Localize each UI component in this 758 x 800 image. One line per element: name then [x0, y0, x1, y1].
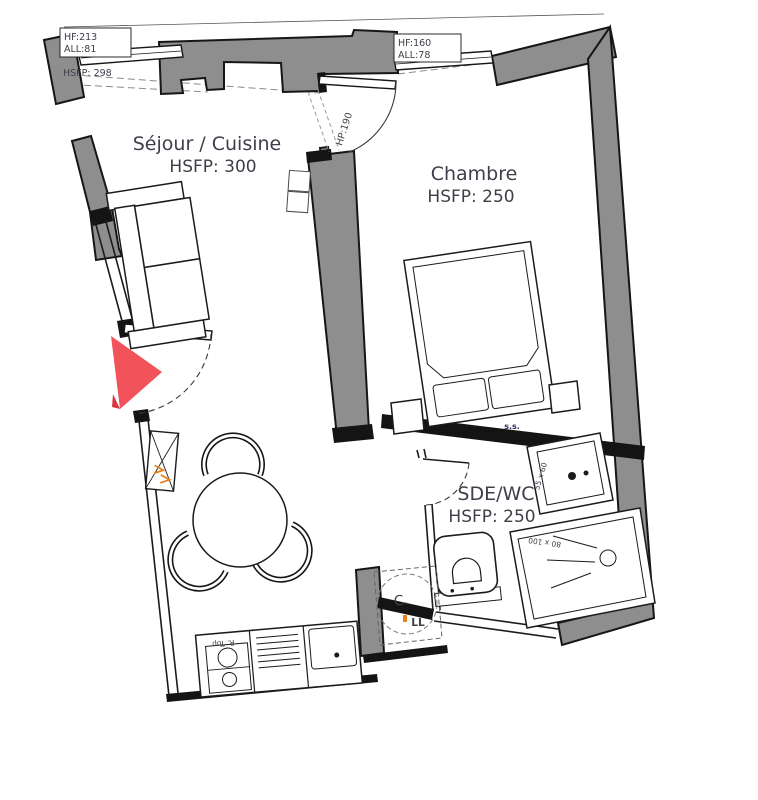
- radiator: [287, 170, 311, 212]
- wall-middle-divider: [308, 147, 369, 437]
- electrical-panel: [146, 431, 179, 491]
- window-left-label-box: HF:213 ALL:81: [60, 28, 131, 57]
- window-right-hf: HF:160: [398, 38, 431, 49]
- bed: [404, 242, 555, 427]
- sde-name: SDE/WC: [457, 483, 534, 505]
- toilet: [429, 531, 502, 607]
- chambre-door-height: HP:190: [334, 111, 355, 147]
- basin-faucet-icon: [568, 472, 576, 480]
- chair: [204, 435, 262, 475]
- towel-rail-label: s.s.: [504, 422, 520, 431]
- wall-stub-closet: [356, 567, 384, 656]
- nightstand-right: [549, 381, 580, 413]
- floor-plan-canvas: HF:213 ALL:81 HSFP: 298 HF:160 ALL:78 HP…: [0, 0, 758, 800]
- window-left-all: ALL:81: [64, 44, 96, 55]
- dining-table: [158, 435, 321, 600]
- chambre-hsfp: HSFP: 250: [427, 187, 514, 207]
- floor-plan-drawing: HF:213 ALL:81 HSFP: 298 HF:160 ALL:78 HP…: [0, 0, 758, 800]
- washer-tick-icon: [403, 615, 407, 622]
- water-heater-label: C.: [393, 592, 409, 610]
- window-left-hf: HF:213: [64, 32, 97, 43]
- nightstand-left: [391, 399, 424, 434]
- table-top: [193, 473, 287, 567]
- washbasin: 55 x 60: [527, 433, 613, 514]
- window-right-all: ALL:78: [398, 50, 430, 61]
- basin-faucet-icon: [584, 471, 589, 476]
- window-right-label-box: HF:160 ALL:78: [394, 34, 461, 62]
- ceiling-height-label: HSFP: 298: [63, 68, 112, 79]
- sejour-hsfp: HSFP: 300: [169, 157, 256, 177]
- sde-hsfp: HSFP: 250: [448, 507, 535, 527]
- washing-machine-label: LL: [411, 617, 425, 629]
- facade-dimension-line: [64, 14, 604, 27]
- sejour-name: Séjour / Cuisine: [133, 133, 281, 155]
- chambre-name: Chambre: [431, 163, 518, 185]
- kitchen-counter: R. Top: [196, 621, 363, 697]
